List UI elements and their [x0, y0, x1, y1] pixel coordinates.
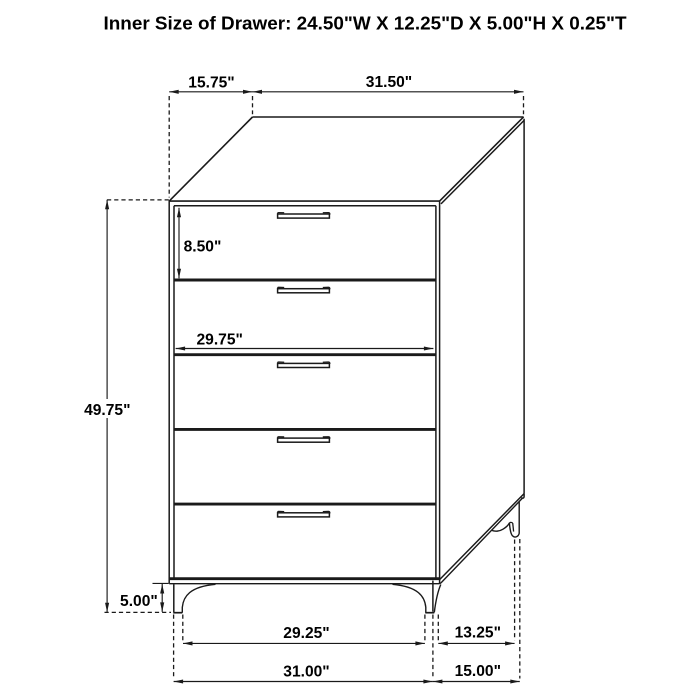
svg-text:49.75": 49.75"	[84, 402, 130, 419]
svg-text:Inner Size of Drawer: 24.50"W: Inner Size of Drawer: 24.50"W X 12.25"D …	[104, 14, 627, 35]
svg-text:31.50": 31.50"	[366, 74, 412, 91]
svg-text:29.75": 29.75"	[197, 331, 243, 348]
svg-text:31.00": 31.00"	[283, 664, 329, 681]
svg-text:15.75": 15.75"	[188, 74, 234, 91]
svg-text:15.00": 15.00"	[455, 663, 501, 680]
svg-text:5.00": 5.00"	[120, 593, 158, 610]
svg-text:13.25": 13.25"	[455, 625, 501, 642]
svg-text:29.25": 29.25"	[283, 625, 329, 642]
svg-text:8.50": 8.50"	[184, 238, 222, 255]
